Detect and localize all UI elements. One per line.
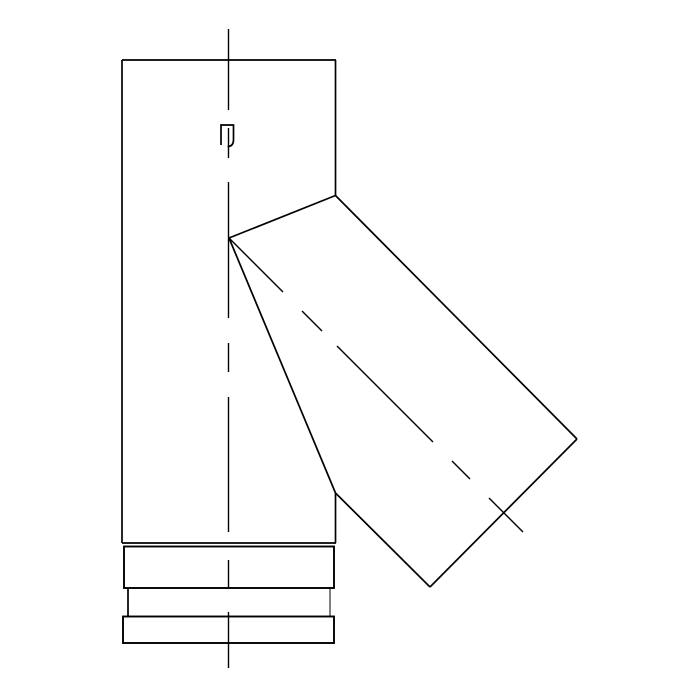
branch-centerline-dash-2: [337, 346, 433, 442]
branch-miter-upper-joint: [229, 196, 336, 239]
drawing-page: [0, 0, 700, 700]
branch-bottom-edge: [336, 493, 431, 587]
branch-centerline-dash-4: [489, 498, 523, 532]
seam-lock-tab: [221, 125, 234, 147]
branch-miter-lower-joint: [229, 238, 336, 493]
branch-centerline-dash-0: [229, 238, 283, 292]
branch-top-edge: [336, 196, 578, 440]
branch-centerline-dash-1: [302, 311, 322, 331]
technical-drawing-svg: [0, 0, 700, 700]
branch-centerline-dash-3: [452, 461, 470, 479]
